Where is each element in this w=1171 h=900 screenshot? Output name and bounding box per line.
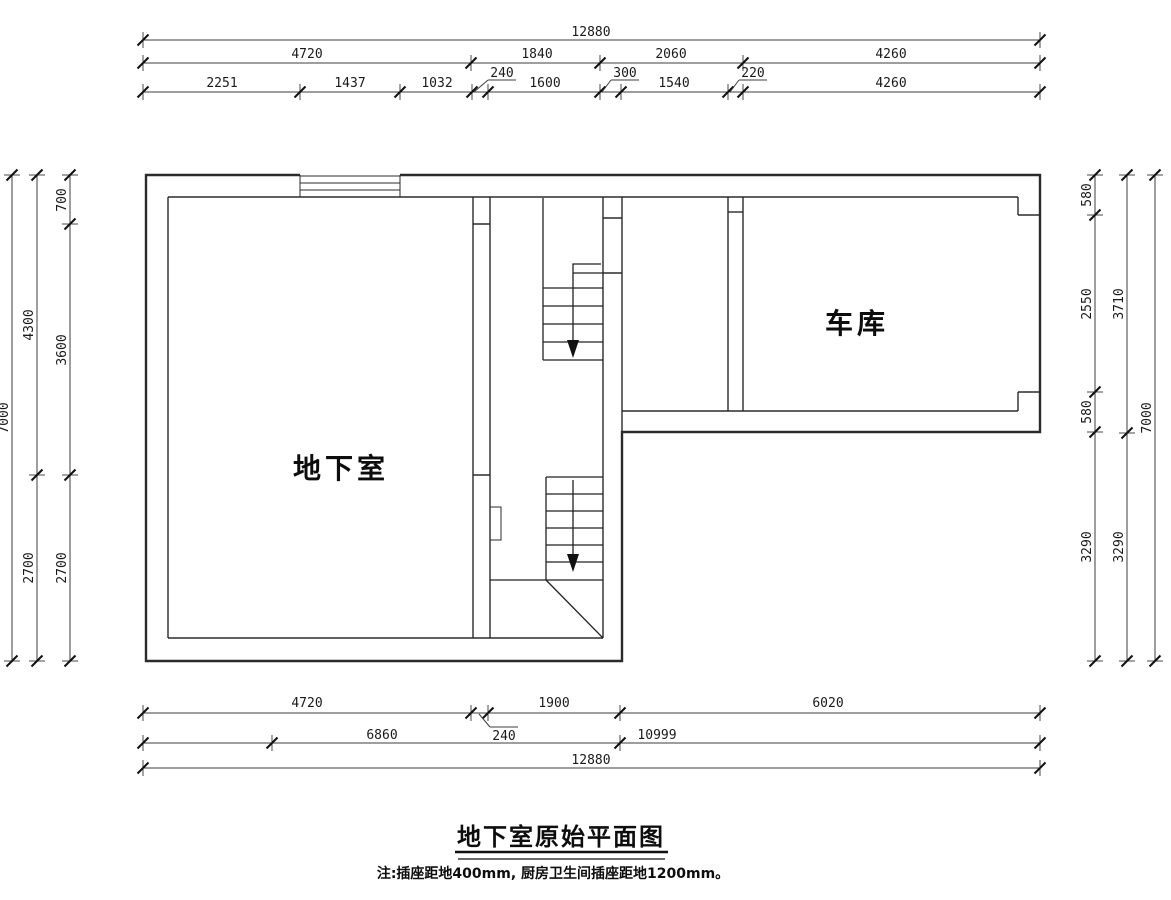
dim-label: 6020 — [812, 696, 843, 711]
door-jamb — [490, 507, 501, 540]
dim-label: 3600 — [55, 334, 70, 365]
dim-label: 1600 — [529, 76, 560, 91]
window-top — [300, 175, 400, 197]
dim-label: 4300 — [22, 309, 37, 340]
dim-label: 700 — [55, 188, 70, 211]
dim-chain-right: 580 2550 580 3290 3710 3290 7000 — [1080, 170, 1163, 667]
inner-walls — [168, 197, 1040, 638]
room-label-garage: 车库 — [825, 307, 889, 340]
dim-chain-bottom: 4720 1900 6020 240 6860 10999 12880 — [138, 696, 1046, 776]
stair-break-diagonal — [546, 580, 603, 638]
dim-label: 2550 — [1080, 288, 1095, 319]
dim-label: 4720 — [291, 47, 322, 62]
dim-label: 240 — [490, 66, 513, 81]
floorplan-canvas: 地下室 车库 12880 4720 1840 2060 4260 2251 14… — [0, 0, 1171, 900]
stair-lower-flight — [490, 477, 603, 638]
dim-label: 580 — [1080, 183, 1095, 206]
dim-leader: 240 — [474, 66, 516, 92]
dim-label: 1840 — [521, 47, 552, 62]
dim-label: 10999 — [637, 728, 676, 743]
dim-label: 2251 — [206, 76, 237, 91]
stair-down-arrow — [567, 264, 601, 358]
dim-label: 240 — [492, 729, 515, 744]
dim-label: 300 — [613, 66, 636, 81]
dim-leader: 240 — [479, 714, 518, 744]
dim-label: 220 — [741, 66, 764, 81]
dim-label: 4720 — [291, 696, 322, 711]
dim-chain-top: 12880 4720 1840 2060 4260 2251 1437 1032… — [138, 25, 1046, 100]
dim-label: 2700 — [22, 552, 37, 583]
room-label-basement: 地下室 — [293, 452, 389, 485]
dim-label: 1437 — [334, 76, 365, 91]
dim-label: 12880 — [571, 753, 610, 768]
drawing-note: 注:插座距地400mm, 厨房卫生间插座距地1200mm。 — [377, 865, 729, 882]
dim-label: 4260 — [875, 76, 906, 91]
dim-label: 2060 — [655, 47, 686, 62]
dim-label: 2700 — [55, 552, 70, 583]
dim-leader: 220 — [730, 66, 767, 92]
stair-upper-flight — [543, 198, 603, 360]
dim-label: 3290 — [1112, 531, 1127, 562]
dim-label: 7000 — [1140, 402, 1155, 433]
dim-label: 3290 — [1080, 531, 1095, 562]
dim-label: 4260 — [875, 47, 906, 62]
drawing-caption: 地下室原始平面图 注:插座距地400mm, 厨房卫生间插座距地1200mm。 — [377, 823, 729, 882]
dim-label: 580 — [1080, 400, 1095, 423]
dim-label: 1540 — [658, 76, 689, 91]
dim-label: 1900 — [538, 696, 569, 711]
dim-label: 12880 — [571, 25, 610, 40]
drawing-title: 地下室原始平面图 — [457, 823, 665, 851]
dim-label: 7000 — [0, 402, 12, 433]
dim-label: 3710 — [1112, 288, 1127, 319]
dim-label: 1032 — [421, 76, 452, 91]
dim-chain-left: 7000 4300 2700 700 3600 2700 — [0, 170, 78, 667]
outer-walls — [146, 175, 1040, 661]
dim-label: 6860 — [366, 728, 397, 743]
floorplan-page: 地下室 车库 12880 4720 1840 2060 4260 2251 14… — [0, 0, 1171, 900]
